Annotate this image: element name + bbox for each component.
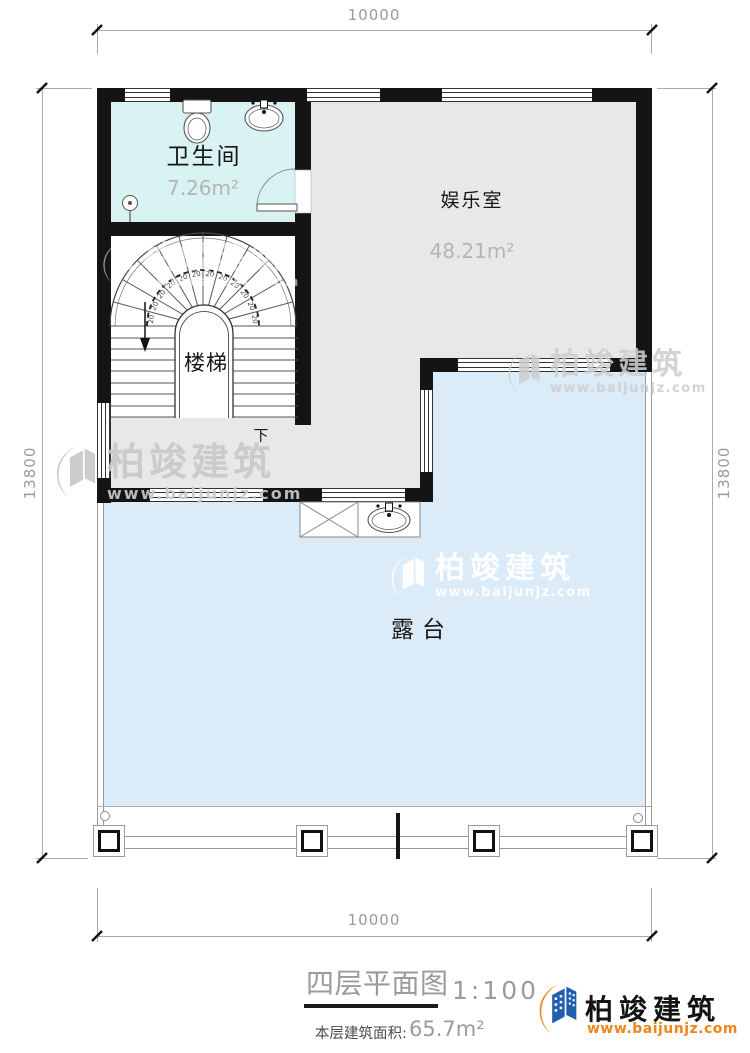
floor-area-value: 65.7m² — [409, 1017, 485, 1041]
room-label-stairwell: 楼梯 — [184, 347, 228, 377]
svg-text:20: 20 — [238, 288, 250, 300]
floor-area-label: 本层建筑面积: — [315, 1022, 407, 1043]
title-underline — [304, 1004, 438, 1008]
stairs-drawing: 20 20 20 20 20 20 20 20 20 20 20 20 — [110, 233, 298, 418]
drawing-title: 四层平面图 — [306, 962, 449, 1002]
brand-logo-url: www.baijunjz.com — [587, 1021, 738, 1037]
svg-text:20: 20 — [177, 273, 188, 284]
svg-text:20: 20 — [205, 270, 215, 279]
dimension-tick-marks — [37, 25, 717, 941]
bathroom-door — [257, 169, 311, 213]
svg-text:20: 20 — [246, 300, 257, 311]
svg-text:20: 20 — [250, 314, 259, 324]
bathroom-sink-icon — [245, 100, 283, 131]
svg-text:20: 20 — [156, 288, 168, 300]
svg-text:20: 20 — [217, 273, 228, 284]
svg-text:20: 20 — [191, 270, 201, 279]
svg-text:20: 20 — [147, 314, 156, 324]
room-label-entertainment: 娱乐室 — [440, 186, 503, 213]
room-area-bathroom: 7.26m² — [167, 176, 239, 200]
stairs-direction-label: 下 — [253, 425, 268, 446]
svg-text:20: 20 — [165, 279, 177, 291]
brand-logo-icon — [533, 980, 583, 1040]
svg-text:20: 20 — [229, 279, 241, 291]
svg-text:20: 20 — [150, 300, 161, 311]
drawing-scale: 1:100 — [452, 976, 539, 1005]
plan-vector-overlay: 20 20 20 20 20 20 20 20 20 20 20 20 — [0, 0, 750, 1053]
room-area-entertainment: 48.21m² — [430, 239, 515, 263]
room-label-terrace: 露台 — [391, 610, 453, 644]
floor-drain-icon — [123, 196, 138, 223]
room-label-bathroom: 卫生间 — [167, 137, 242, 171]
floor-plan-sheet: 10000 10000 13800 13800 — [0, 0, 750, 1053]
